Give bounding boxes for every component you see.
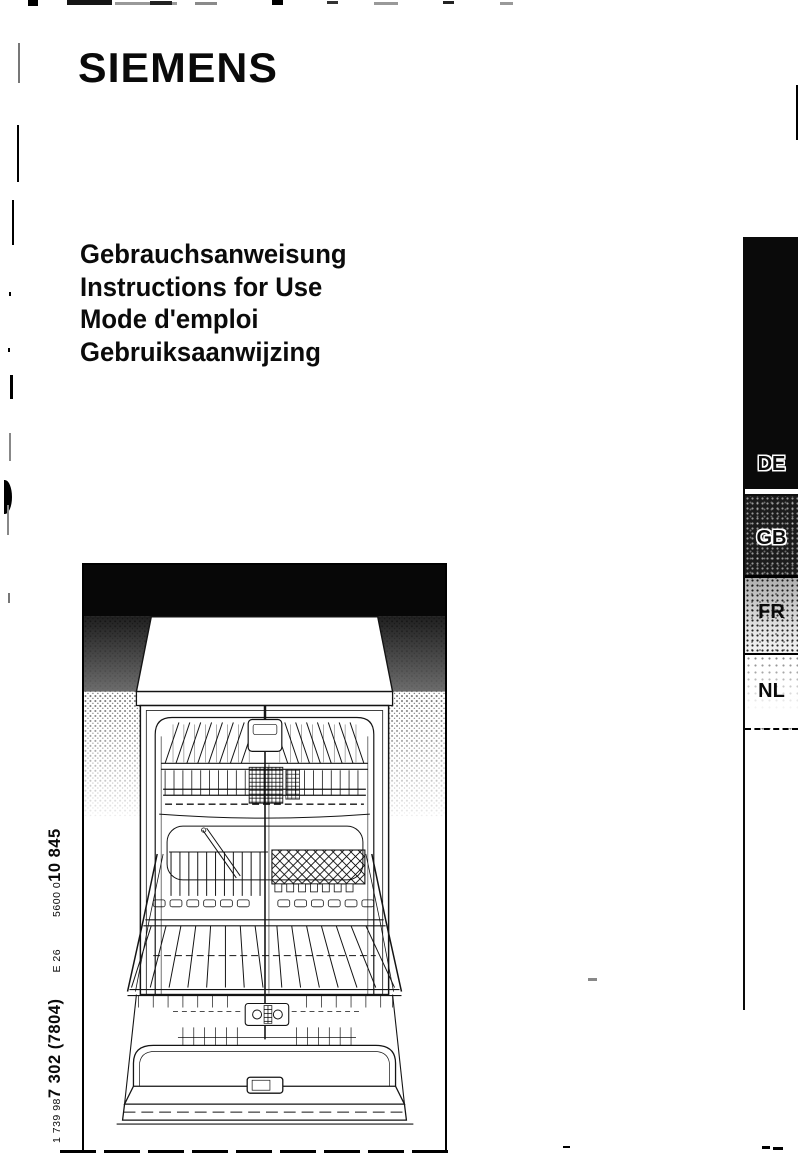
- scan-artifact-dash: [28, 0, 38, 6]
- dishwasher-illustration: [82, 563, 447, 1152]
- scan-artifact-dot: [9, 292, 11, 296]
- language-tab-fr: FR: [745, 578, 798, 655]
- brand-logo: SIEMENS: [78, 44, 278, 92]
- scan-artifact-dash: [374, 2, 398, 5]
- scan-artifact-dash: [327, 1, 338, 4]
- frame-bottom-border: [60, 1150, 448, 1153]
- language-tab-nl: NL: [745, 655, 798, 730]
- scan-artifact-dash: [195, 2, 217, 5]
- title-dutch: Gebruiksaanwijzing: [80, 336, 347, 369]
- scan-artifact-dash: [443, 1, 454, 4]
- title-french: Mode d'emploi: [80, 303, 347, 336]
- scan-artifact-dash: [563, 1146, 570, 1148]
- scan-artifact-dash: [150, 1, 172, 5]
- language-tab-gb-label: GB: [745, 527, 798, 549]
- scan-artifact-dash: [773, 1147, 783, 1150]
- language-tab-de: DE: [745, 237, 798, 489]
- manual-cover-page: SIEMENS Gebrauchsanweisung Instructions …: [0, 0, 802, 1157]
- scan-artifact-dot: [8, 348, 10, 352]
- scan-artifact-line: [12, 200, 14, 245]
- scan-artifact-dash: [67, 0, 112, 5]
- language-tab-fr-label: FR: [745, 601, 798, 623]
- scan-artifact-line: [9, 433, 11, 461]
- spine-material-number: 10 845: [46, 828, 64, 881]
- title-english: Instructions for Use: [80, 271, 347, 304]
- language-tab-gb: GB: [745, 494, 798, 578]
- scan-artifact-dash: [272, 0, 283, 5]
- dishwasher-drawing: [117, 617, 414, 1124]
- spine-material-number-prefix: 5600 0: [51, 882, 63, 917]
- language-tab-de-label: DE: [745, 453, 798, 475]
- spine-order-number: 7 302 (7804): [46, 999, 64, 1099]
- language-tab-nl-label: NL: [745, 680, 798, 702]
- scan-artifact-line: [18, 43, 20, 83]
- spine-part-numbers: 1 739 987 302 (7804)E 265600 010 845: [46, 823, 65, 1143]
- scan-artifact-line: [7, 505, 9, 535]
- scan-artifact-line: [17, 125, 19, 182]
- scan-artifact-dash: [588, 978, 597, 981]
- spine-order-number-prefix: 1 739 98: [51, 1098, 63, 1143]
- scan-artifact-line: [8, 593, 10, 603]
- title-german: Gebrauchsanweisung: [80, 238, 347, 271]
- scan-artifact-dash: [500, 2, 513, 5]
- scan-artifact-line: [10, 375, 13, 399]
- spine-edition-code: E 26: [51, 949, 63, 973]
- title-block: Gebrauchsanweisung Instructions for Use …: [80, 238, 361, 368]
- scan-artifact-line: [796, 85, 798, 140]
- scan-artifact-dash: [762, 1146, 770, 1149]
